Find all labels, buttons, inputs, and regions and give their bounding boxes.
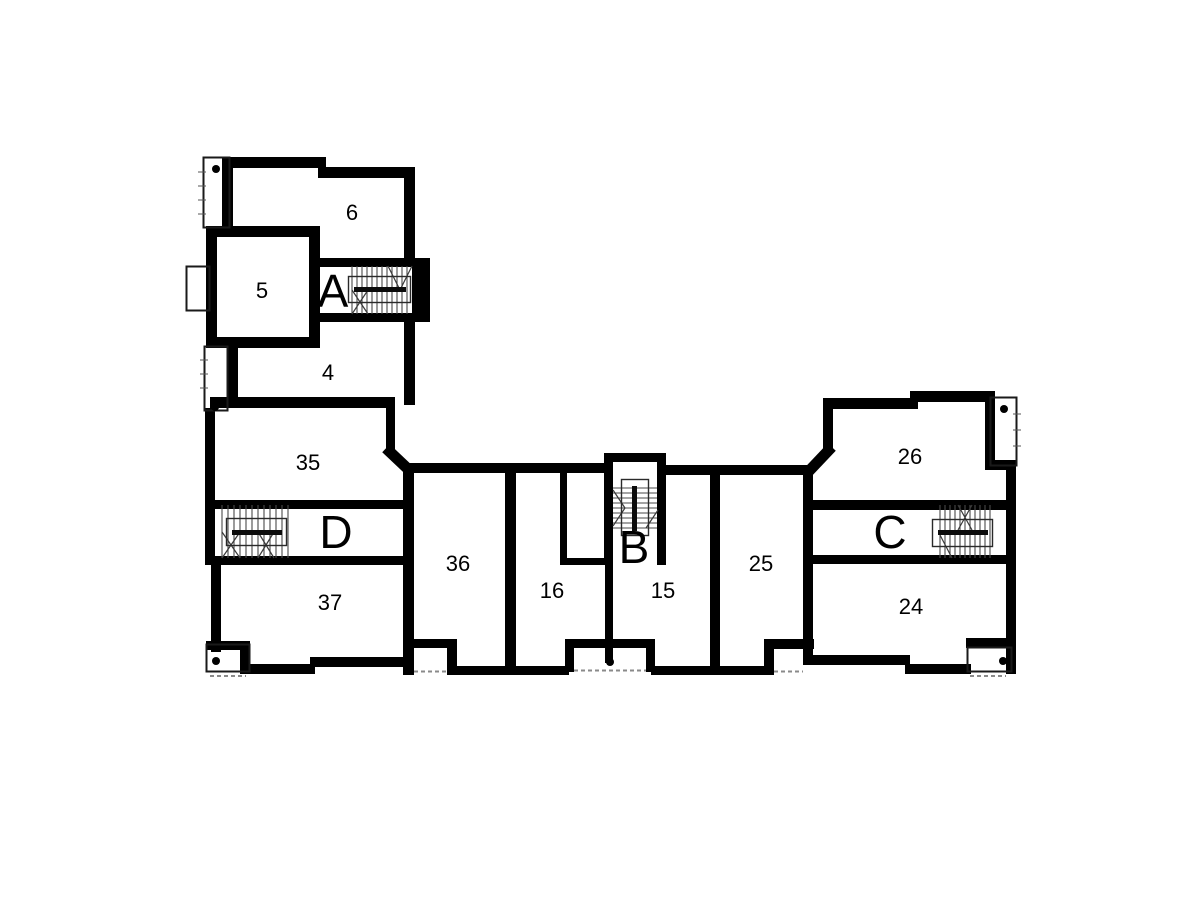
point-marker xyxy=(212,657,220,665)
stair-label-a: A xyxy=(318,265,349,317)
stair-symbol-c xyxy=(933,505,993,558)
room-label-15: 15 xyxy=(651,578,675,603)
room-label-37: 37 xyxy=(318,590,342,615)
stair-symbol-d xyxy=(222,505,288,558)
entrance-porch-center xyxy=(574,658,646,671)
room-label-35: 35 xyxy=(296,450,320,475)
point-marker xyxy=(212,165,220,173)
stair-symbol-a xyxy=(349,266,413,314)
room-label-25: 25 xyxy=(749,551,773,576)
room-label-16: 16 xyxy=(540,578,564,603)
floor-plan-drawing: 6 5 4 35 37 36 16 15 25 26 24 A B C D xyxy=(0,0,1200,900)
point-marker xyxy=(1000,405,1008,413)
floor-plan-page: 6 5 4 35 37 36 16 15 25 26 24 A B C D xyxy=(0,0,1200,900)
room-label-26: 26 xyxy=(898,444,922,469)
stair-label-b: B xyxy=(619,521,650,573)
point-marker xyxy=(606,658,614,666)
stair-label-d: D xyxy=(319,506,352,558)
room-label-5: 5 xyxy=(256,278,268,303)
room-label-4: 4 xyxy=(322,360,334,385)
room-label-36: 36 xyxy=(446,551,470,576)
stair-label-c: C xyxy=(873,506,906,558)
room-label-24: 24 xyxy=(899,594,923,619)
balcony-top-right xyxy=(991,398,1022,466)
point-marker xyxy=(999,657,1007,665)
balcony-bottom-right xyxy=(968,648,1012,677)
room-label-6: 6 xyxy=(346,200,358,225)
point-marker xyxy=(211,403,219,411)
